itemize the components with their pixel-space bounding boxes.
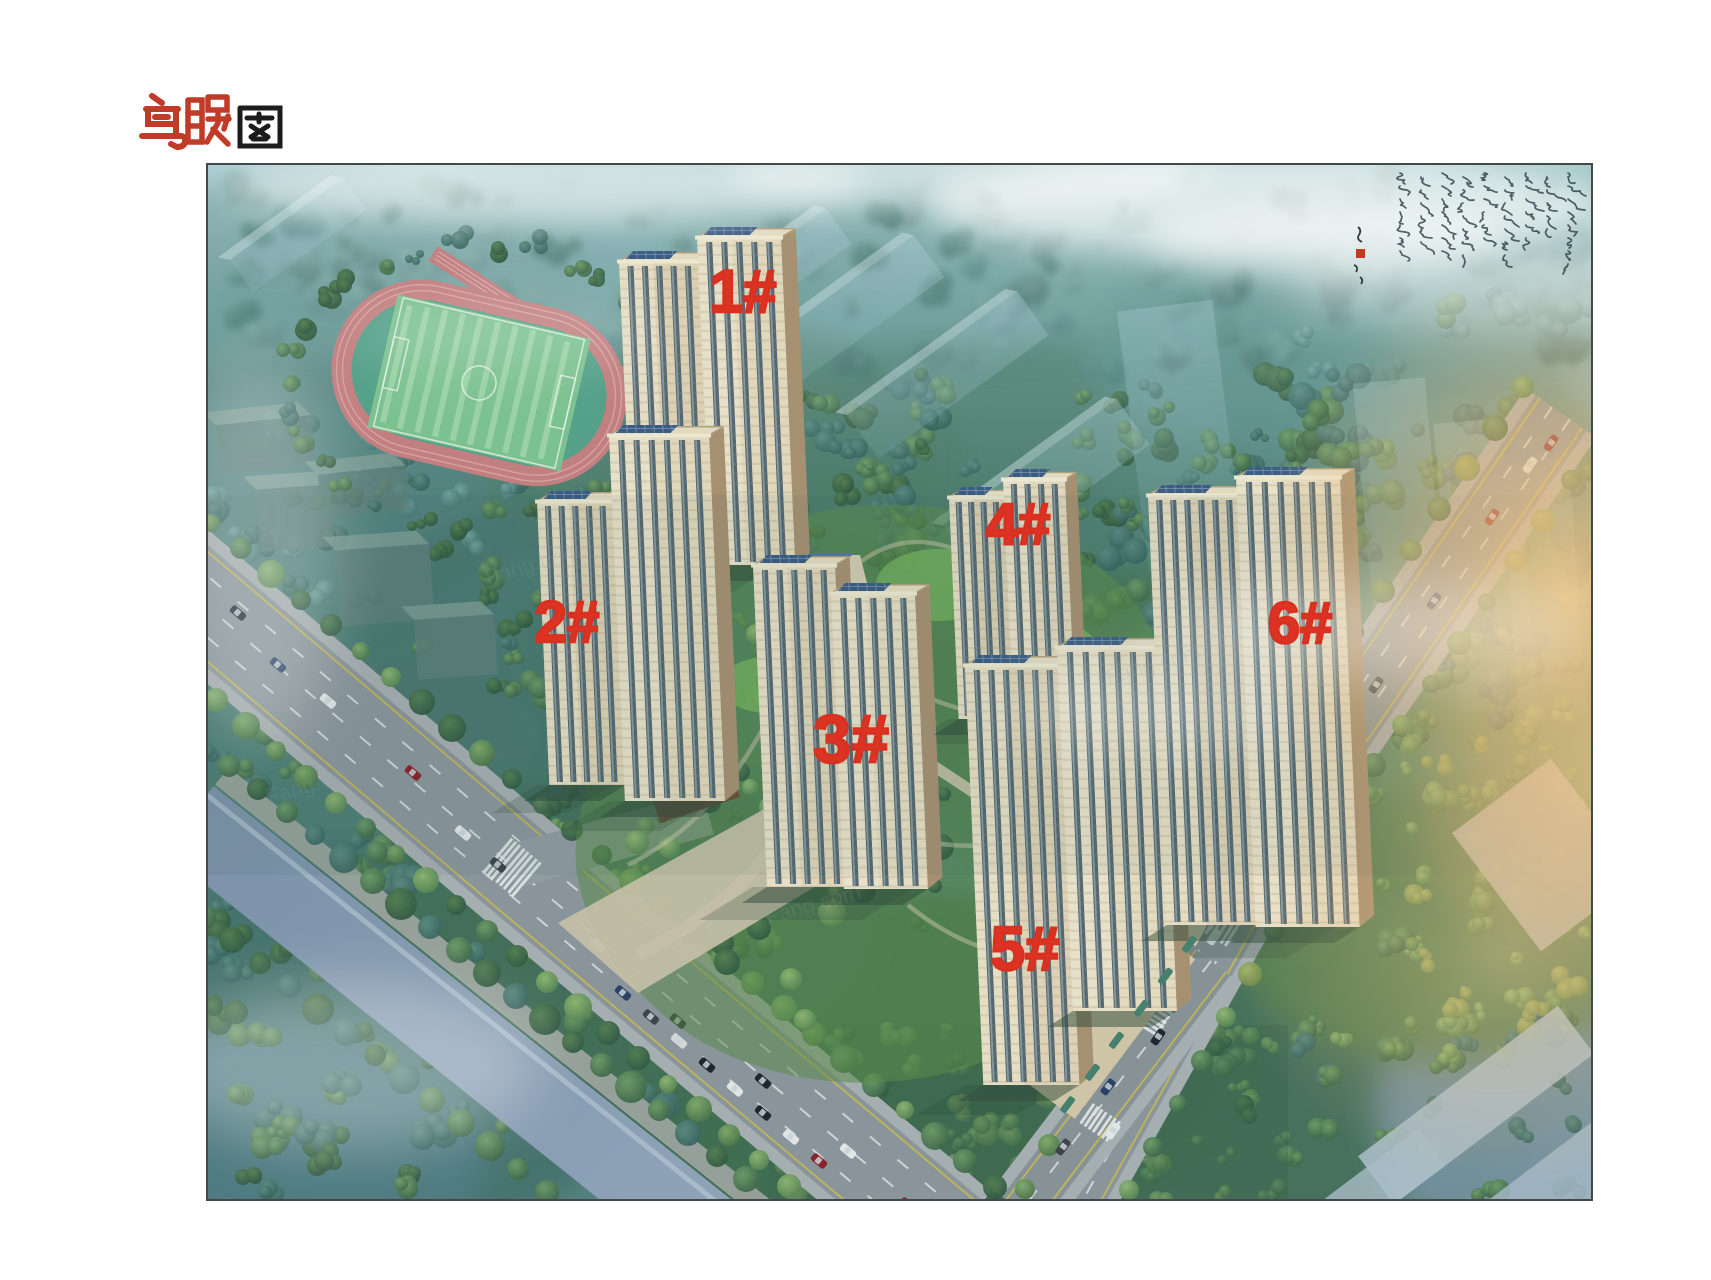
svg-text:6#: 6# xyxy=(1268,591,1333,656)
svg-text:4#: 4# xyxy=(986,492,1051,557)
svg-text:2#: 2# xyxy=(535,590,600,655)
svg-text:5#: 5# xyxy=(991,915,1060,984)
svg-text:3#: 3# xyxy=(813,701,889,777)
svg-text:1#: 1# xyxy=(710,258,777,325)
